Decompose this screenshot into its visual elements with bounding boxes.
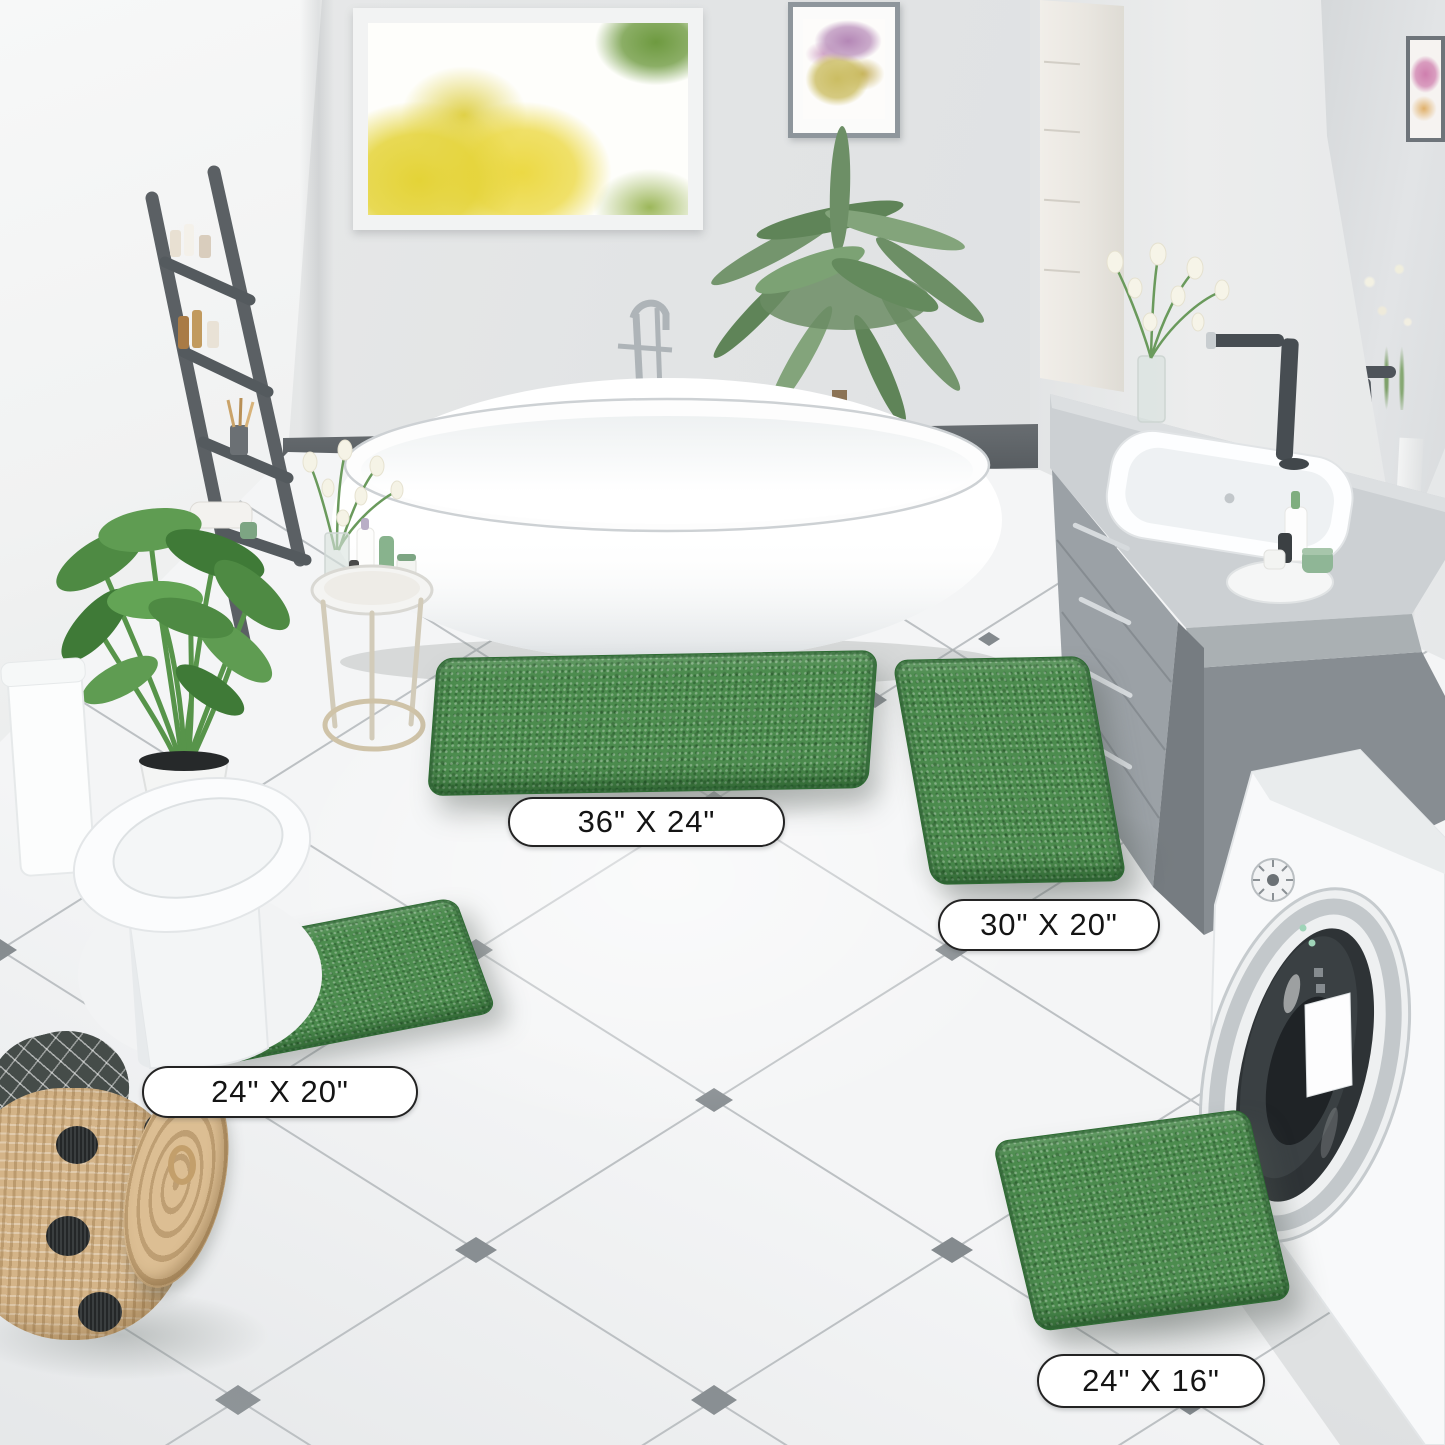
size-label-24x16: 24" X 16" — [1037, 1354, 1265, 1408]
bathroom-product-photo: 36" X 24" 30" X 20" 24" X 20" 24" X 16" — [0, 0, 1445, 1445]
washer-ledge — [1305, 993, 1352, 1097]
bath-rug-36x24 — [427, 650, 878, 796]
size-label-30x20: 30" X 20" — [938, 899, 1160, 951]
basket-dot — [56, 1126, 98, 1164]
window-autumn-trees — [368, 23, 688, 215]
washer-dial — [1252, 859, 1294, 901]
size-label-36x24: 36" X 24" — [508, 797, 785, 847]
basket-dot — [46, 1216, 90, 1256]
cabinet-shelf — [1044, 129, 1080, 133]
cabinet-shelf — [1044, 61, 1080, 65]
basket-dot — [78, 1292, 122, 1332]
wall-art-frame — [788, 2, 900, 138]
window — [353, 8, 703, 230]
mirror-reflected-art — [1406, 36, 1445, 142]
toilet — [0, 620, 330, 1100]
size-label-24x20: 24" X 20" — [142, 1066, 418, 1118]
bath-rug-30x20 — [892, 656, 1127, 885]
bath-rug-24x16 — [992, 1108, 1293, 1332]
table-legs — [323, 600, 421, 738]
basket-lid-handle — [168, 1145, 196, 1185]
cabinet-shelf — [1044, 199, 1080, 203]
wall-art-watercolor — [803, 19, 885, 119]
